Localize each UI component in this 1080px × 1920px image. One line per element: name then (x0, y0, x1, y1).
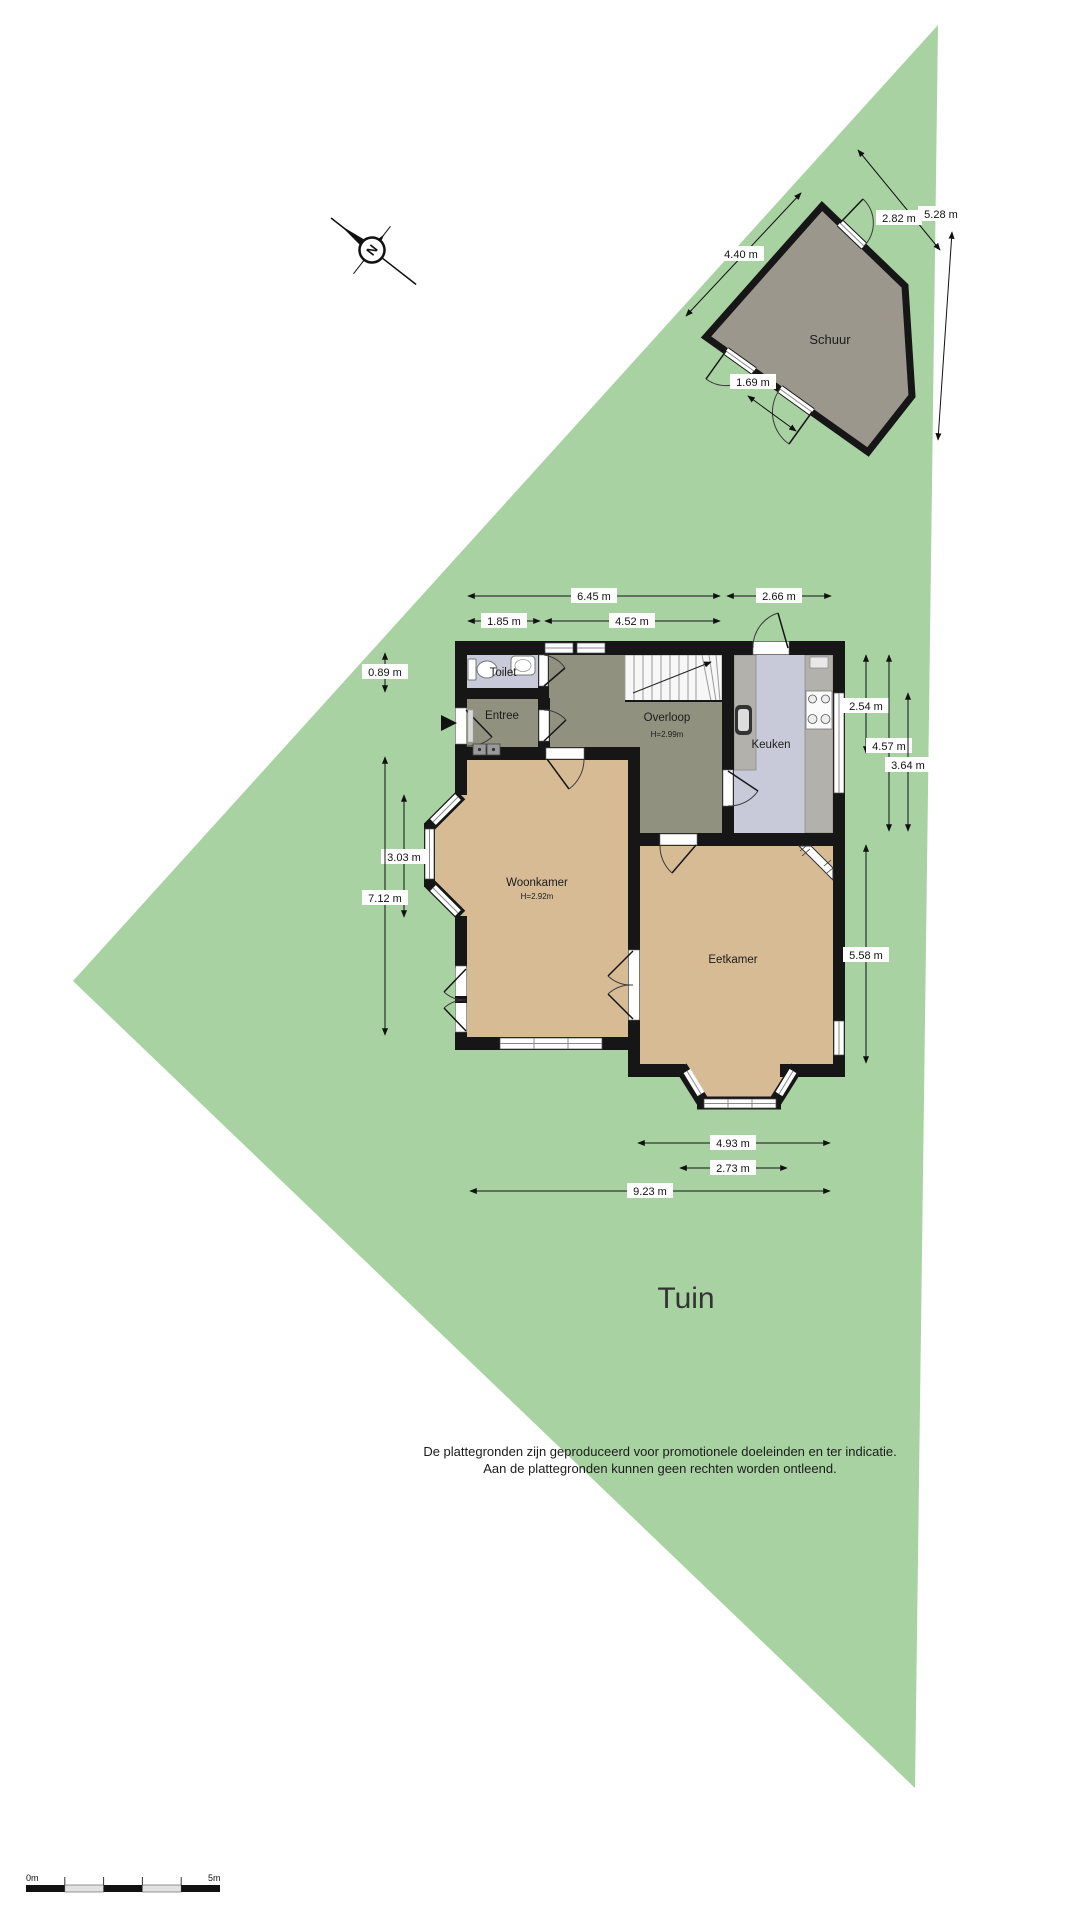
dim-shed-top: 2.82 m (882, 213, 916, 225)
dim-shed-door: 1.69 m (736, 377, 770, 389)
dining-door (660, 834, 697, 845)
scale-bar: 0m 5m (26, 1873, 221, 1892)
dim-left-total: 7.12 m (368, 893, 402, 905)
entree-door (539, 710, 549, 741)
room-height-overloop: H=2.99m (651, 730, 684, 739)
room-label-overloop: Overloop (644, 712, 691, 724)
floorplan-canvas: Schuur (0, 0, 1080, 1920)
dim-right-dining: 5.58 m (849, 950, 883, 962)
dim-top-kitchen: 2.66 m (762, 591, 796, 603)
dim-right-kitchen-depth: 4.57 m (872, 741, 906, 753)
dim-top-inner: 4.52 m (615, 616, 649, 628)
dim-shed-left: 4.40 m (724, 249, 758, 261)
room-label-eetkamer: Eetkamer (708, 954, 757, 966)
dim-left-passage: 0.89 m (368, 667, 402, 679)
front-door (456, 708, 467, 744)
dim-bottom-dining: 4.93 m (716, 1138, 750, 1150)
stairs (625, 655, 722, 701)
room-label-woonkamer: Woonkamer (506, 877, 568, 889)
room-label-keuken: Keuken (751, 739, 790, 751)
room-height-woonkamer: H=2.92m (521, 892, 554, 901)
dim-top-total: 6.45 m (577, 591, 611, 603)
dim-shed-right: 5.28 m (924, 209, 958, 221)
dim-right-inner: 3.64 m (891, 760, 925, 772)
kitchen-door (723, 770, 733, 806)
dim-right-kitchen-window: 2.54 m (849, 701, 883, 713)
floorplan-page: Schuur (0, 0, 1080, 1920)
scale-end-label: 5m (208, 1873, 221, 1883)
house: Toilet Entree Overloop H=2.99m Keuken Wo… (424, 613, 845, 1108)
dim-bottom-bay: 2.73 m (716, 1163, 750, 1175)
scale-start-label: 0m (26, 1873, 39, 1883)
shed-label: Schuur (809, 332, 851, 347)
compass: N (313, 194, 435, 308)
back-door (753, 642, 789, 655)
appliance-icon (810, 657, 828, 668)
stove-icon (806, 691, 832, 729)
room-label-entree: Entree (485, 710, 519, 722)
dim-bottom-total: 9.23 m (633, 1186, 667, 1198)
room-eetkamer (640, 846, 833, 1098)
room-label-toilet: Toilet (490, 667, 518, 679)
doormat (468, 710, 473, 742)
garden-label: Tuin (657, 1282, 714, 1315)
disclaimer-line-1: De plattegronden zijn geproduceerd voor … (423, 1444, 896, 1459)
disclaimer-line-2: Aan de plattegronden kunnen geen rechten… (483, 1461, 836, 1476)
dim-left-bay: 3.03 m (387, 852, 421, 864)
living-door (546, 748, 584, 759)
dim-top-toilet: 1.85 m (487, 616, 521, 628)
toilet-door (539, 655, 548, 686)
